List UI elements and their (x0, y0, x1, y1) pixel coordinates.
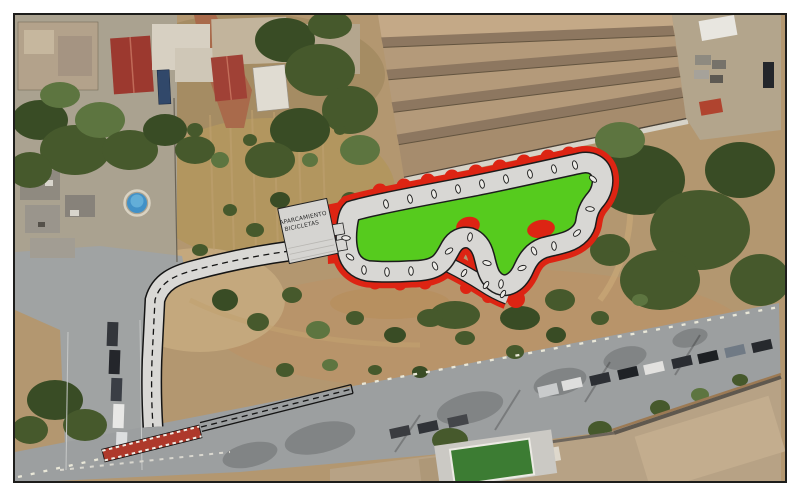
van (157, 70, 171, 105)
aerial-map: APARCAMIENTO BICICLETAS (15, 15, 785, 481)
red-roof-house (110, 36, 154, 95)
aerial-plan-screenshot: APARCAMIENTO BICICLETAS (0, 0, 800, 496)
red-roof-house-2 (211, 54, 247, 101)
parked-car (763, 62, 774, 88)
map-frame: APARCAMIENTO BICICLETAS (13, 13, 787, 483)
industrial-yard (672, 15, 781, 140)
